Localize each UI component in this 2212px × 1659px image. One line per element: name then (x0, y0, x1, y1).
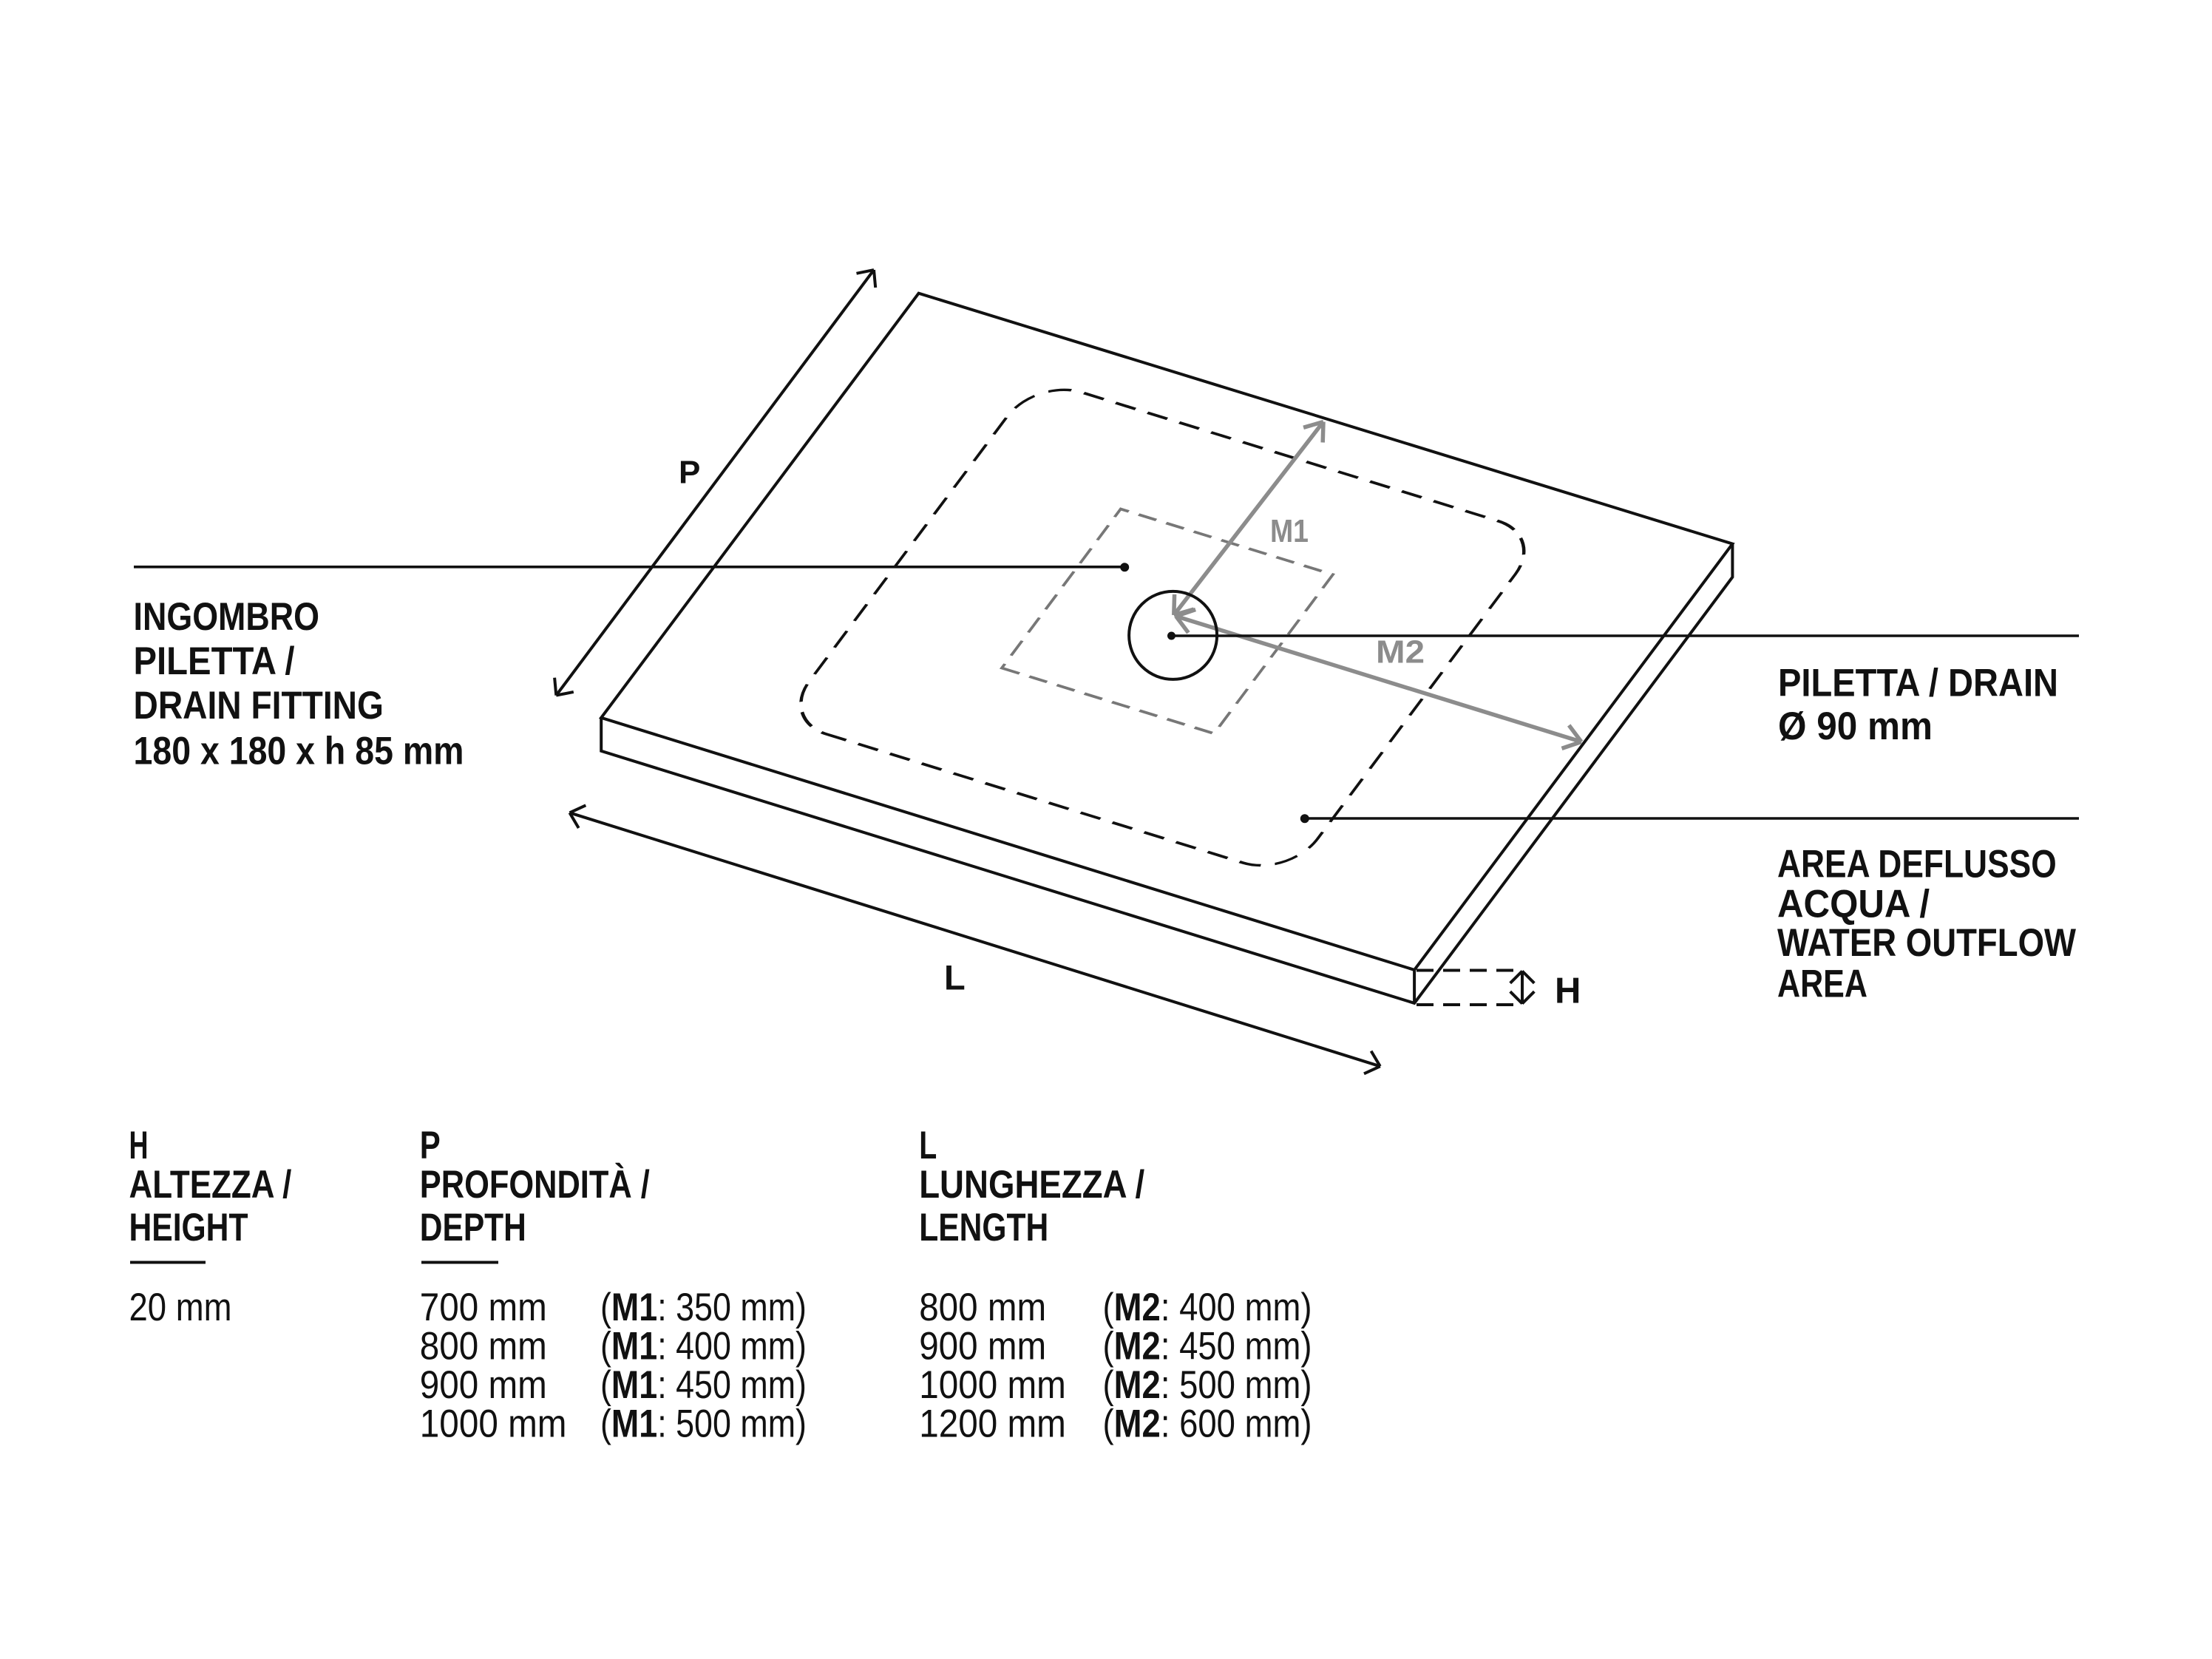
svg-text:H: H (129, 1124, 149, 1167)
svg-text:1000 mm: 1000 mm (919, 1363, 1066, 1407)
svg-text:M2: M2 (1376, 634, 1425, 670)
svg-text:L: L (919, 1124, 937, 1167)
svg-text:180 x 180 x h 85 mm: 180 x 180 x h 85 mm (134, 730, 464, 773)
svg-text:(M1: 350 mm): (M1: 350 mm) (600, 1286, 807, 1329)
svg-text:(M1: 500 mm): (M1: 500 mm) (600, 1402, 807, 1446)
svg-text:(M1: 400 mm): (M1: 400 mm) (600, 1325, 807, 1368)
svg-text:AREA DEFLUSSO: AREA DEFLUSSO (1777, 843, 2057, 886)
svg-text:AREA: AREA (1777, 963, 1867, 1006)
svg-text:1000 mm: 1000 mm (420, 1402, 567, 1446)
svg-text:L: L (944, 958, 966, 997)
svg-text:(M2: 400 mm): (M2: 400 mm) (1103, 1286, 1312, 1329)
svg-text:(M2: 500 mm): (M2: 500 mm) (1103, 1363, 1312, 1407)
svg-text:PROFONDITÀ /: PROFONDITÀ / (420, 1162, 650, 1207)
svg-text:H: H (1555, 971, 1581, 1011)
svg-text:P: P (420, 1124, 441, 1167)
svg-text:HEIGHT: HEIGHT (129, 1206, 248, 1249)
svg-text:LUNGHEZZA /: LUNGHEZZA / (919, 1163, 1144, 1207)
svg-text:900 mm: 900 mm (919, 1325, 1046, 1368)
svg-text:PILETTA / DRAIN: PILETTA / DRAIN (1778, 661, 2058, 705)
svg-text:Ø 90 mm: Ø 90 mm (1778, 705, 1933, 748)
svg-text:P: P (679, 454, 700, 490)
svg-text:DRAIN FITTING: DRAIN FITTING (134, 684, 384, 727)
svg-text:900 mm: 900 mm (420, 1363, 547, 1407)
svg-text:LENGTH: LENGTH (919, 1206, 1048, 1249)
svg-text:800 mm: 800 mm (919, 1286, 1046, 1329)
svg-text:PILETTA /: PILETTA / (134, 639, 295, 683)
svg-text:700 mm: 700 mm (420, 1286, 547, 1329)
svg-text:800 mm: 800 mm (420, 1325, 547, 1368)
svg-text:1200 mm: 1200 mm (919, 1402, 1066, 1446)
svg-text:(M2: 450 mm): (M2: 450 mm) (1103, 1325, 1312, 1368)
svg-text:(M1: 450 mm): (M1: 450 mm) (600, 1363, 807, 1407)
svg-text:(M2: 600 mm): (M2: 600 mm) (1103, 1402, 1312, 1446)
svg-text:M1: M1 (1270, 513, 1309, 549)
svg-text:DEPTH: DEPTH (420, 1206, 526, 1249)
svg-text:WATER OUTFLOW: WATER OUTFLOW (1777, 921, 2076, 965)
svg-text:ALTEZZA /: ALTEZZA / (129, 1163, 292, 1207)
svg-text:INGOMBRO: INGOMBRO (134, 595, 320, 639)
svg-text:20 mm: 20 mm (129, 1286, 232, 1329)
svg-text:ACQUA /: ACQUA / (1777, 883, 1930, 926)
